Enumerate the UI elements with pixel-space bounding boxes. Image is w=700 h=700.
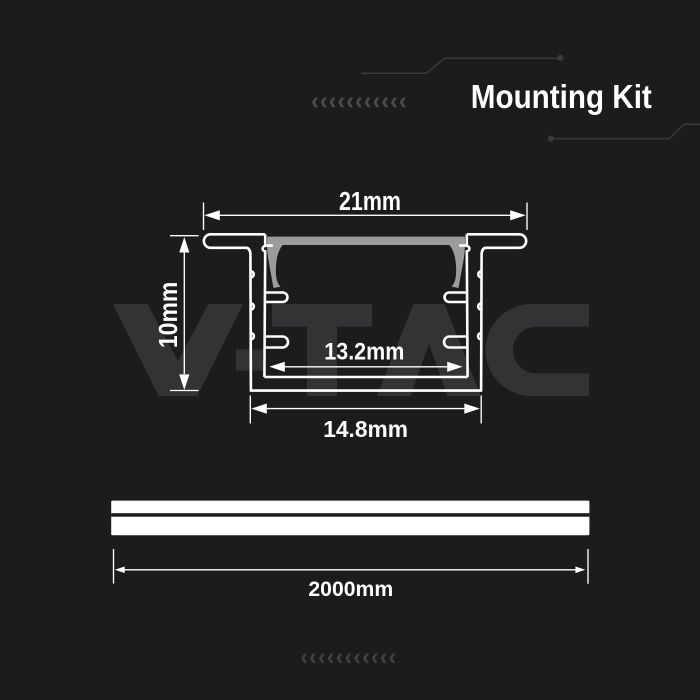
svg-text:2000mm: 2000mm bbox=[308, 578, 393, 601]
svg-text:14.8mm: 14.8mm bbox=[323, 416, 408, 442]
svg-text:10mm: 10mm bbox=[153, 282, 183, 349]
svg-text:Mounting Kit: Mounting Kit bbox=[471, 78, 652, 115]
svg-text:21mm: 21mm bbox=[339, 188, 401, 216]
svg-text:13.2mm: 13.2mm bbox=[324, 338, 404, 365]
